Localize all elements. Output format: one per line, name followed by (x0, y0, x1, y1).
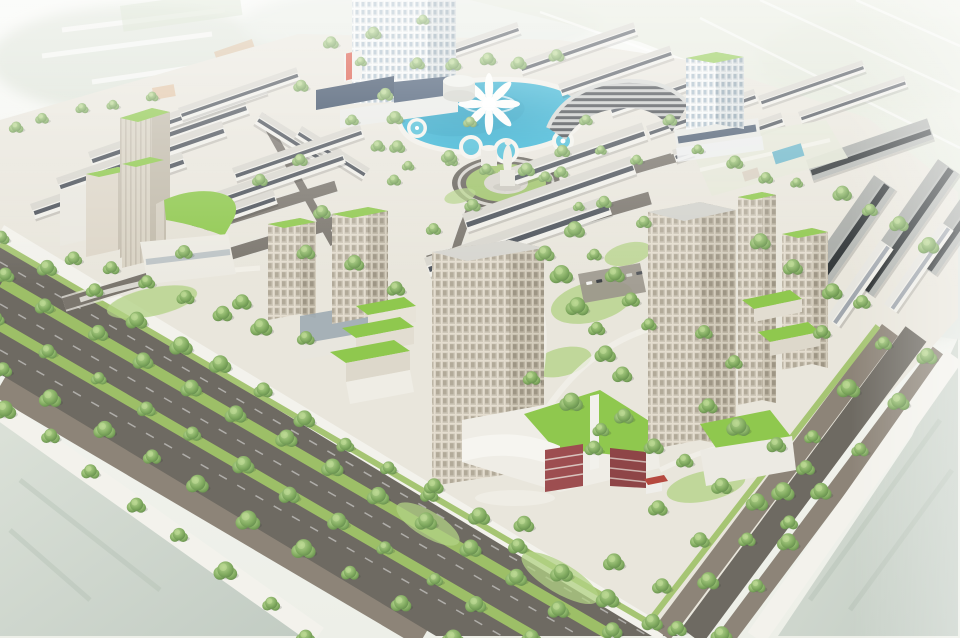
aerial-render (0, 0, 960, 638)
scene-svg (0, 0, 960, 638)
haze-overlay-right (850, 0, 960, 638)
haze-overlay (0, 0, 960, 638)
